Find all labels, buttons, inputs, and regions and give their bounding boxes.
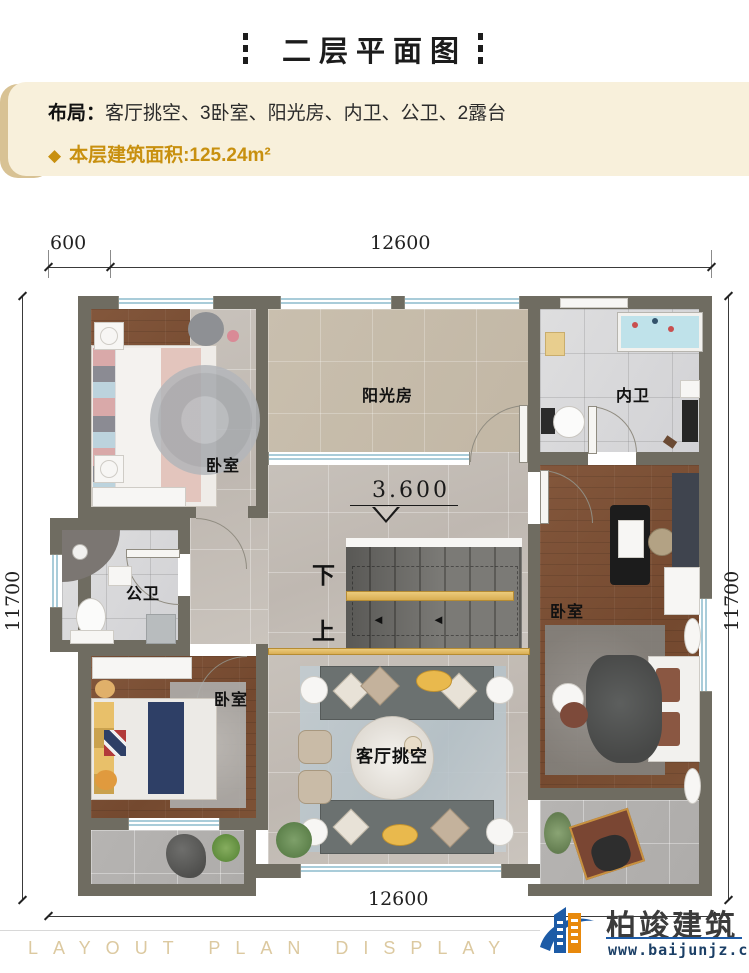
footer-divider (0, 930, 540, 931)
stair-handrail (346, 591, 514, 601)
window-bed3-right (699, 598, 712, 692)
toilet (553, 406, 585, 438)
side-table (486, 676, 514, 704)
wall-sunroom-right (528, 296, 540, 464)
room-label-living: 客厅挑空 (356, 742, 428, 767)
blanket (586, 655, 662, 763)
layout-label: 布局： (48, 103, 105, 124)
wall-terr-left-bottom (78, 884, 256, 896)
tray (416, 670, 452, 692)
window-sunroom-top-b (404, 296, 520, 309)
wall-right (699, 296, 712, 896)
stool (95, 770, 117, 790)
void-guardrail (268, 648, 530, 655)
stair-arrow-icon: ◄ (372, 612, 385, 627)
dim-bottom: 12600 (368, 888, 428, 910)
room-label-sunroom: 阳光房 (362, 382, 413, 406)
wall-ensuite-bottom-b (636, 452, 699, 465)
wall-bed1-bottom2 (248, 506, 268, 518)
brand-logo: 柏竣建筑 www.baijunjz.com (532, 893, 749, 969)
shower-head (72, 544, 88, 560)
plant (276, 822, 312, 858)
dim-left: 11700 (2, 571, 24, 631)
dim-top-offset: 600 (50, 232, 86, 254)
layout-value: 客厅挑空、3卧室、阳光房、内卫、公卫、2露台 (105, 103, 506, 124)
nightstand (684, 768, 701, 804)
watermark-text: LAYOUT PLAN DISPLAY LAYOUT PLAN (28, 938, 528, 959)
round-rug (150, 365, 260, 475)
title-dash-right-icon (478, 33, 483, 67)
window-ensuite-top (560, 298, 628, 308)
cabinet (664, 567, 700, 615)
wall-ensuite-bottom-a (540, 452, 588, 465)
door-leaf-ensuite (588, 406, 597, 454)
window-bath-left (50, 554, 62, 608)
level-triangle-icon (372, 507, 400, 523)
bathtub (618, 313, 702, 351)
stool (95, 680, 115, 698)
tray (382, 824, 418, 846)
stair-arrow-icon: ◄ (432, 612, 445, 627)
room-label-bedroom-right: 卧室 (550, 598, 584, 622)
brand-site: www.baijunjz.com (608, 941, 749, 959)
brand-logo-icon (532, 895, 604, 967)
pouf (298, 770, 332, 804)
stair-down-label: 下 (312, 556, 335, 590)
bed-runner (148, 702, 184, 794)
ottoman (188, 312, 224, 346)
dim-tick (18, 895, 27, 904)
logo-swoosh (540, 919, 594, 951)
stair-up-label: 上 (312, 612, 335, 646)
window-living-bottom (300, 864, 502, 878)
wall-bath-top (50, 518, 190, 530)
bathtub-decal (668, 326, 674, 332)
window-bed1-top (118, 296, 214, 309)
pouf (298, 730, 332, 764)
side-table (300, 676, 328, 704)
plant (212, 834, 240, 862)
wall-bed1-bottom (78, 506, 196, 518)
door-leaf-sunroom (519, 405, 528, 463)
stair-landing (346, 538, 522, 547)
area-line: ◆本层建筑面积:125.24m² (48, 140, 271, 167)
dresser (92, 487, 186, 507)
window-sunroom-top-a (280, 296, 392, 309)
vanity (682, 400, 698, 442)
diamond-bullet-icon: ◆ (48, 146, 61, 165)
window-sunroom-bottom (268, 452, 470, 465)
nightstand (684, 618, 701, 654)
room-label-bedroom1: 卧室 (206, 452, 240, 476)
room-label-bedroom2: 卧室 (214, 686, 248, 710)
wall-bed3-left (528, 524, 540, 800)
toilet-tank (70, 630, 114, 644)
title-dash-left-icon (243, 33, 248, 67)
sink (680, 380, 700, 398)
flag-pillow (104, 730, 126, 756)
dim-right: 11700 (721, 571, 743, 631)
window-bed2-terrace (128, 818, 220, 830)
side-table (486, 818, 514, 846)
dim-line-top (48, 267, 712, 268)
wardrobe (672, 473, 699, 567)
desk (618, 520, 644, 558)
wall-bed2-right (256, 644, 268, 830)
bathtub-decal (632, 322, 638, 328)
level-annotation: 3.600 (372, 478, 450, 503)
lamp (100, 460, 118, 478)
wardrobe (92, 657, 192, 679)
dim-top-main: 12600 (370, 232, 430, 254)
bathtub-decal (652, 318, 658, 324)
shelf (545, 332, 565, 356)
door-leaf-public-bath (126, 549, 180, 558)
mat (146, 614, 176, 644)
plant (544, 812, 572, 854)
brand-underline (606, 937, 742, 939)
wall-bed2-top (78, 644, 190, 656)
wall-bed3-left-stub (528, 452, 540, 472)
layout-line: 布局：客厅挑空、3卧室、阳光房、内卫、公卫、2露台 (48, 98, 506, 125)
stool (560, 702, 588, 728)
area-value: 本层建筑面积:125.24m² (69, 145, 271, 166)
door-leaf-bed3 (540, 470, 549, 524)
stool (227, 330, 239, 342)
room-label-public-bath: 公卫 (126, 580, 160, 604)
page-title: 二层平面图 (0, 28, 749, 70)
room-label-ensuite: 内卫 (616, 382, 650, 406)
level-underline (350, 505, 458, 506)
lamp (100, 327, 118, 345)
